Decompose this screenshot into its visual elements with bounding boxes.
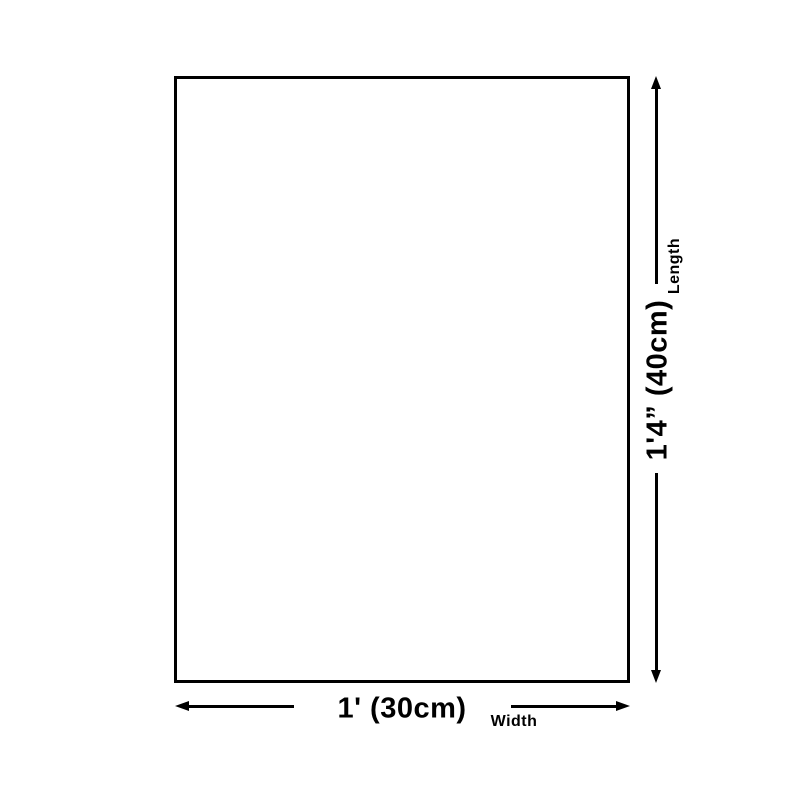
width-dimension-value: 1' (30cm) [337,695,466,724]
length-dimension-line-bottom [655,473,658,671]
length-dimension-value: 1'4” (40cm) [644,300,673,461]
width-dimension-line-right [511,705,617,708]
arrow-left-icon [175,701,189,711]
width-axis-label: Width [491,714,538,730]
width-dimension-line-left [188,705,294,708]
arrow-down-icon [651,670,661,683]
length-dimension-line-top [655,87,658,284]
arrow-right-icon [616,701,630,711]
product-outline-rectangle [174,76,630,683]
dimension-diagram: 1'4” (40cm) Length 1' (30cm) Width [0,0,800,800]
length-axis-label: Length [667,238,683,294]
